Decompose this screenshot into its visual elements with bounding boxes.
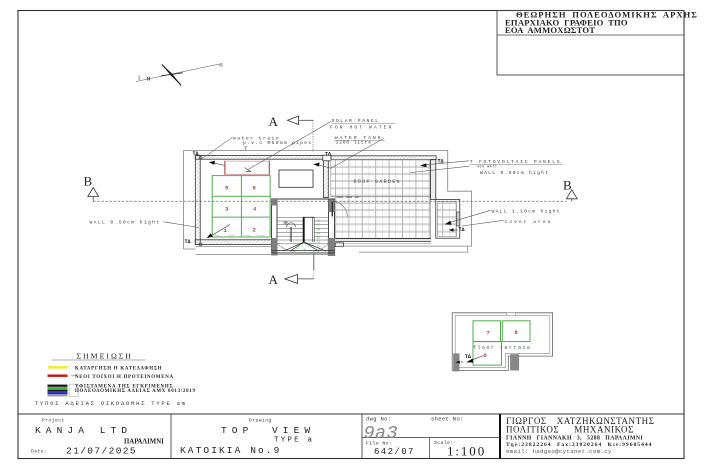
svg-text:Drawing: Drawing <box>249 418 272 424</box>
svg-text:22: 22 <box>317 246 321 249</box>
svg-text:14: 14 <box>302 249 306 252</box>
svg-text:File No:: File No: <box>366 441 392 447</box>
svg-text:23: 23 <box>317 249 321 252</box>
svg-text:20: 20 <box>317 236 321 239</box>
svg-text:ΚΑΤΟΙΚΙΑ No.9: ΚΑΤΟΙΚΙΑ No.9 <box>180 445 281 456</box>
svg-text:p.v.c Φ50mm pipes: p.v.c Φ50mm pipes <box>243 140 312 146</box>
svg-text:05: 05 <box>219 65 223 69</box>
svg-text:ΠΟΛΙΤΙΚΟΣ ΜΗΧΑΝΙΚΟΣ: ΠΟΛΙΤΙΚΟΣ ΜΗΧΑΝΙΚΟΣ <box>506 425 634 435</box>
svg-text:dwg No:: dwg No: <box>366 417 391 423</box>
svg-text:450 WATT: 450 WATT <box>477 166 497 170</box>
svg-text:7: 7 <box>244 146 247 152</box>
svg-text:WALL 0.50cm hight: WALL 0.50cm hight <box>480 170 549 176</box>
svg-text:ΤΔ: ΤΔ <box>459 227 465 233</box>
svg-text:sheet No:: sheet No: <box>431 417 464 423</box>
svg-text:642/07: 642/07 <box>374 447 415 457</box>
svg-text:B: B <box>563 178 572 193</box>
svg-text:cover area: cover area <box>505 220 553 225</box>
svg-text:8: 8 <box>515 330 518 336</box>
svg-text:A: A <box>269 272 279 287</box>
svg-text:ΠΑΡΑΛΙΜΝΙ: ΠΑΡΑΛΙΜΝΙ <box>124 439 164 446</box>
svg-text:B: B <box>84 174 93 189</box>
svg-text:up: up <box>284 222 288 226</box>
svg-text:ROOF GARDEN: ROOF GARDEN <box>354 179 401 185</box>
svg-text:TYPE a: TYPE a <box>274 437 314 445</box>
svg-text:ΤΔ: ΤΔ <box>193 151 199 157</box>
svg-text:SOLAR PANEL: SOLAR PANEL <box>332 118 380 124</box>
svg-text:ΤΔ: ΤΔ <box>185 239 191 245</box>
svg-text:15: 15 <box>296 247 300 250</box>
svg-text:16: 16 <box>317 220 321 223</box>
svg-text:ΣΗΜΕΙΩΣΗ: ΣΗΜΕΙΩΣΗ <box>77 352 133 361</box>
svg-text:ΝΕΟΙ ΤΟΙΧΟΙ Η ΠΡΟΤΕΙΝΟΜΕΝΑ: ΝΕΟΙ ΤΟΙΧΟΙ Η ΠΡΟΤΕΙΝΟΜΕΝΑ <box>75 375 174 380</box>
svg-text:1200 litre: 1200 litre <box>336 140 372 146</box>
svg-text:7: 7 <box>487 331 490 337</box>
svg-text:VIEW: VIEW <box>272 425 315 436</box>
svg-text:1:100: 1:100 <box>447 444 486 459</box>
svg-text:WALL 0.50cm hight: WALL 0.50cm hight <box>90 220 161 226</box>
svg-text:19: 19 <box>317 232 321 235</box>
svg-text:ΤΥΠΟΣ ΑΔΕΙΑΣ ΟΙΚΟΔΟΜΗΣ TYPE am: ΤΥΠΟΣ ΑΔΕΙΑΣ ΟΙΚΟΔΟΜΗΣ TYPE am <box>35 400 187 407</box>
svg-text:WALL 1.10cm hight: WALL 1.10cm hight <box>492 209 561 215</box>
svg-text:18: 18 <box>317 228 321 231</box>
svg-text:Project: Project <box>42 418 65 424</box>
svg-text:Date:: Date: <box>31 449 47 455</box>
svg-text:email: hadgeo@cytanet.com.cy: email: hadgeo@cytanet.com.cy <box>506 448 612 455</box>
svg-text:FOR HOT WATER: FOR HOT WATER <box>330 125 393 131</box>
svg-text:21: 21 <box>317 241 321 244</box>
svg-text:ΕΟΑ ΑΜΜΟΧΩΣΤΟΤ: ΕΟΑ ΑΜΜΟΧΩΣΤΟΤ <box>505 25 595 35</box>
svg-text:ΤΔ: ΤΔ <box>325 152 331 158</box>
svg-text:ΤΔ: ΤΔ <box>465 354 471 360</box>
svg-text:A: A <box>269 114 279 129</box>
svg-text:KANJA LTD: KANJA LTD <box>35 425 132 436</box>
svg-text:ΠΟΛΕΟΔΟΜΙΚΗΣ ΑΔΕΙΑΣ ΑΜΧ 0013/2: ΠΟΛΕΟΔΟΜΙΚΗΣ ΑΔΕΙΑΣ ΑΜΧ 0013/2019 <box>75 389 196 394</box>
svg-text:9: 9 <box>484 353 487 359</box>
svg-text:floor terrace: floor terrace <box>473 345 532 351</box>
svg-text:21/07/2025: 21/07/2025 <box>66 446 137 457</box>
svg-text:ΓΙΑΝΝΗ ΓΙΑΝΝΑΚΗ 3, 5288 ΠΑΡΑΛΙ: ΓΙΑΝΝΗ ΓΙΑΝΝΑΚΗ 3, 5288 ΠΑΡΑΛΙΜΝΙ <box>506 436 643 442</box>
svg-text:TOP: TOP <box>221 425 253 436</box>
svg-text:ΚΑΤΑΡΓΗΣΗ Η ΚΑΤΕΔΑΦΗΣΗ: ΚΑΤΑΡΓΗΣΗ Η ΚΑΤΕΔΑΦΗΣΗ <box>75 367 162 372</box>
svg-text:17: 17 <box>317 224 321 227</box>
